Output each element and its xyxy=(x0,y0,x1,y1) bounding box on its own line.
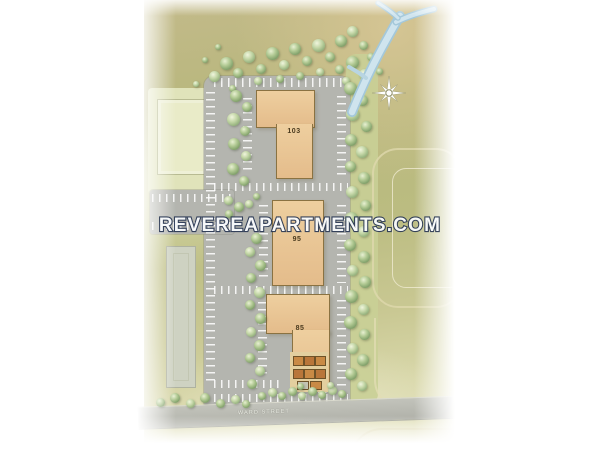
tree-icon xyxy=(251,233,262,244)
tree-icon xyxy=(276,75,284,83)
amenity-structure xyxy=(304,369,315,379)
tree-icon xyxy=(298,392,306,400)
tree-icon xyxy=(359,329,370,340)
amenity-structure xyxy=(315,369,326,379)
tree-icon xyxy=(240,126,250,136)
tree-icon xyxy=(242,400,250,408)
building-95-label: 95 xyxy=(282,236,312,243)
tree-icon xyxy=(358,251,370,263)
tree-icon xyxy=(227,163,239,175)
site-plan-rendering: WARD STREET 103 95 85 xyxy=(0,0,600,450)
road-outline xyxy=(392,168,464,288)
tree-icon xyxy=(357,381,367,391)
parking-stripes xyxy=(214,183,348,191)
building-95 xyxy=(272,200,324,286)
tree-icon xyxy=(231,395,240,404)
margin-left xyxy=(0,0,130,450)
tree-icon xyxy=(245,353,255,363)
amenity-structure xyxy=(304,356,315,366)
tree-icon xyxy=(228,138,240,150)
tree-icon xyxy=(359,276,371,288)
tree-icon xyxy=(358,172,370,184)
tree-icon xyxy=(358,304,369,315)
tree-icon xyxy=(215,44,221,50)
tree-icon xyxy=(253,193,260,200)
tree-icon xyxy=(246,273,256,283)
tree-icon xyxy=(345,134,357,146)
tree-icon xyxy=(358,226,369,237)
tree-icon xyxy=(289,43,301,55)
tree-icon xyxy=(224,196,233,205)
tree-icon xyxy=(200,393,210,403)
tree-icon xyxy=(346,186,358,198)
neighbor-building xyxy=(166,246,196,388)
tree-icon xyxy=(338,390,346,398)
amenity-structure xyxy=(293,356,304,366)
tree-icon xyxy=(297,383,304,390)
tree-icon xyxy=(345,368,357,380)
tree-icon xyxy=(202,57,208,63)
tree-icon xyxy=(170,393,180,403)
tree-icon xyxy=(233,68,243,78)
tree-icon xyxy=(279,60,289,70)
tree-icon xyxy=(239,176,249,186)
tree-icon xyxy=(268,388,277,397)
tree-icon xyxy=(356,146,368,158)
tree-icon xyxy=(345,290,358,303)
road-outline xyxy=(350,428,464,450)
tree-icon xyxy=(347,265,358,276)
tree-icon xyxy=(245,200,253,208)
tree-icon xyxy=(220,57,233,70)
tree-icon xyxy=(255,313,266,324)
tree-icon xyxy=(345,212,358,225)
tree-icon xyxy=(230,90,242,102)
tree-icon xyxy=(318,391,326,399)
building-103-label: 103 xyxy=(278,128,310,135)
street-name-label: WARD STREET xyxy=(238,408,290,416)
parking-stripes xyxy=(214,286,348,294)
amenity-structure xyxy=(293,369,304,379)
tree-icon xyxy=(360,200,371,211)
tree-icon xyxy=(278,392,286,400)
amenity-structure xyxy=(315,356,326,366)
tree-icon xyxy=(266,47,279,60)
tree-icon xyxy=(242,102,252,112)
tree-icon xyxy=(288,387,297,396)
tree-icon xyxy=(209,71,220,82)
tree-icon xyxy=(347,343,358,354)
tree-icon xyxy=(243,51,255,63)
tree-icon xyxy=(255,366,265,376)
compass-star-icon xyxy=(372,76,406,110)
tree-icon xyxy=(156,398,165,407)
road-outline xyxy=(372,148,462,308)
tree-icon xyxy=(225,210,233,218)
tree-icon xyxy=(316,68,324,76)
tree-icon xyxy=(241,151,251,161)
tree-icon xyxy=(361,121,372,132)
parking-stripes xyxy=(206,92,215,384)
tree-icon xyxy=(255,260,266,271)
building-85-label: 85 xyxy=(285,325,315,332)
tree-icon xyxy=(246,327,256,337)
tree-icon xyxy=(312,39,325,52)
tree-icon xyxy=(258,392,266,400)
margin-right xyxy=(464,0,600,450)
tree-icon xyxy=(247,379,257,389)
site-area: WARD STREET 103 95 85 xyxy=(144,0,462,450)
neighbor-parcel-pad xyxy=(157,99,207,175)
parking-stripes xyxy=(152,194,234,202)
tree-icon xyxy=(254,340,265,351)
tree-icon xyxy=(254,77,262,85)
tree-icon xyxy=(302,56,312,66)
tree-icon xyxy=(193,81,199,87)
tree-icon xyxy=(327,382,334,389)
tree-icon xyxy=(245,247,255,257)
building-103 xyxy=(256,90,315,128)
tree-icon xyxy=(345,161,356,172)
tree-icon xyxy=(186,399,195,408)
tree-icon xyxy=(216,399,225,408)
parking-stripes xyxy=(152,222,234,230)
tree-icon xyxy=(227,113,240,126)
tree-icon xyxy=(308,387,317,396)
tree-icon xyxy=(344,316,357,329)
tree-icon xyxy=(256,64,266,74)
tree-icon xyxy=(254,287,265,298)
tree-icon xyxy=(357,354,369,366)
tree-icon xyxy=(296,72,304,80)
tree-icon xyxy=(234,202,244,212)
tree-icon xyxy=(344,239,356,251)
tree-icon xyxy=(245,300,255,310)
